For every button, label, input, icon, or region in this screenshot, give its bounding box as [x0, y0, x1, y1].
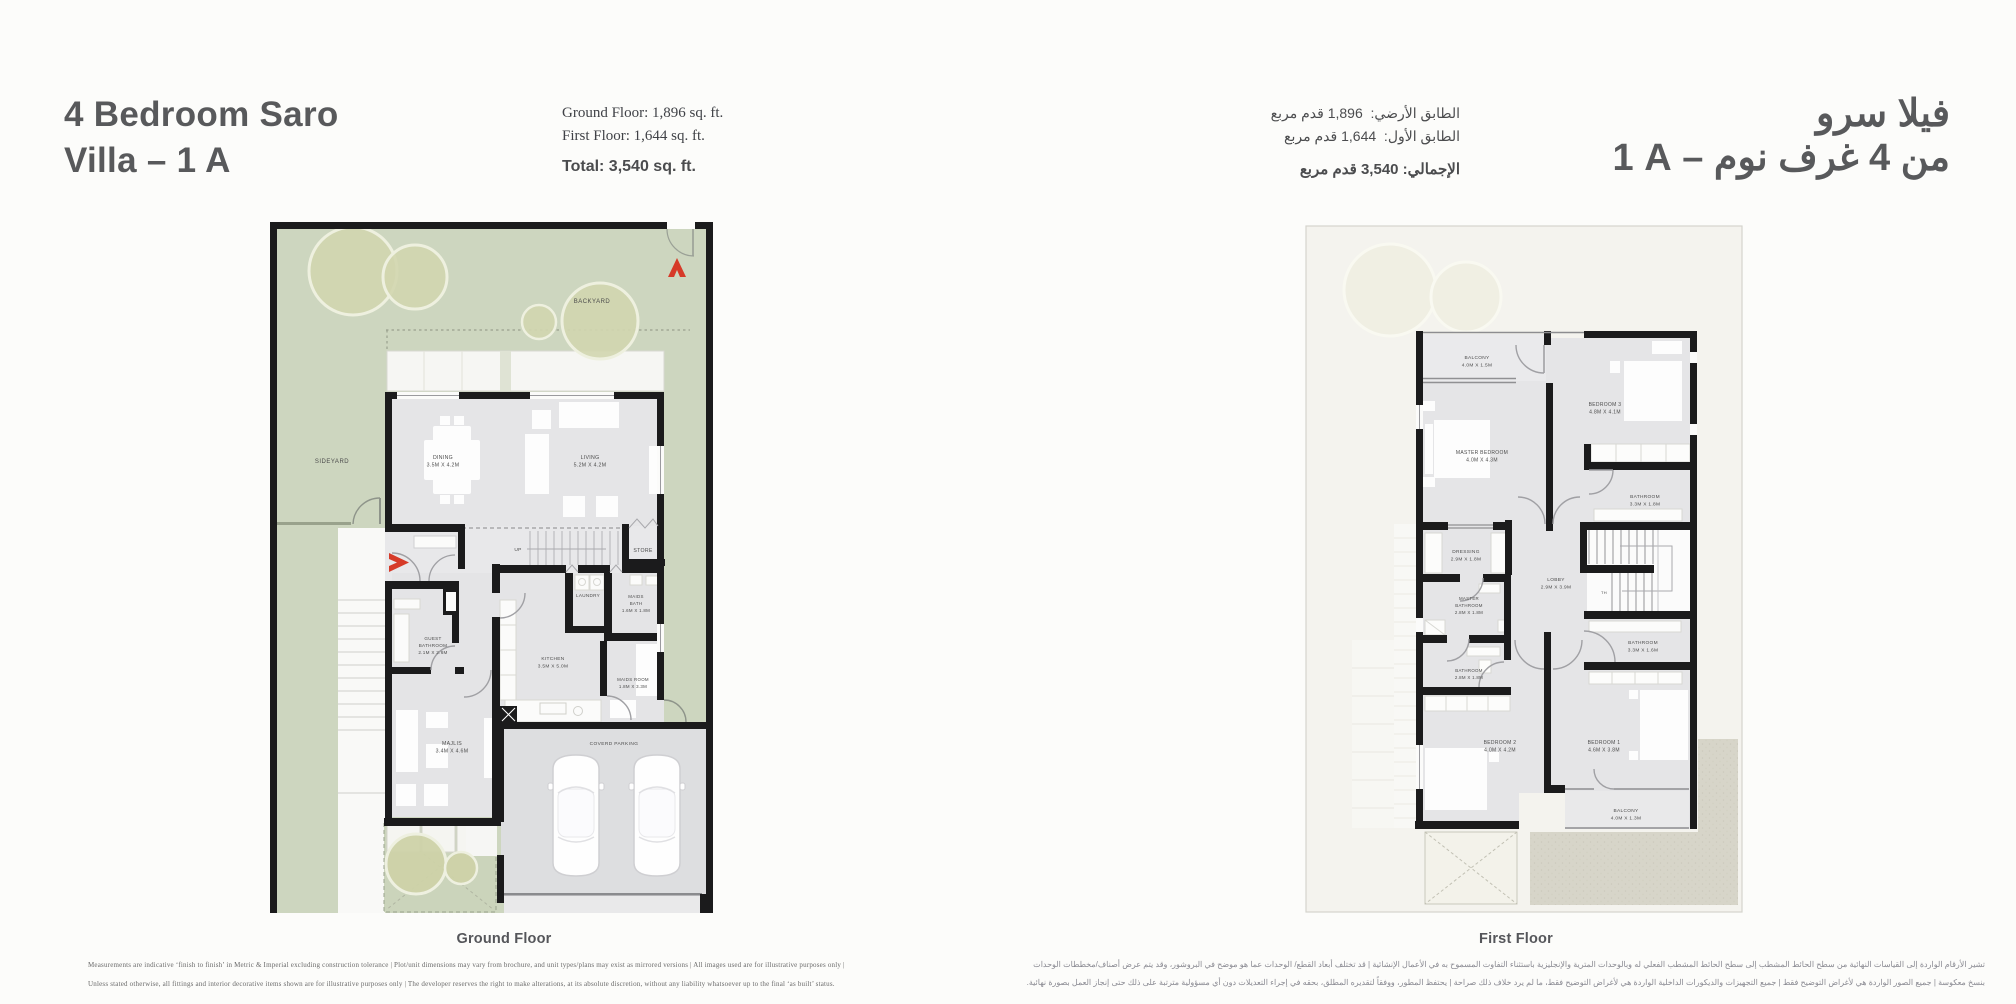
svg-text:4.6M X 3.8M: 4.6M X 3.8M	[1588, 748, 1620, 754]
svg-text:2.8M X 1.8M: 2.8M X 1.8M	[1455, 675, 1483, 680]
svg-text:MAIDS: MAIDS	[628, 594, 643, 599]
svg-text:GUEST: GUEST	[424, 636, 441, 641]
svg-text:BATHROOM: BATHROOM	[419, 643, 448, 648]
svg-text:BALCONY: BALCONY	[1464, 355, 1490, 361]
svg-text:MAIDS ROOM: MAIDS ROOM	[617, 677, 649, 682]
svg-text:BATHROOM: BATHROOM	[1455, 603, 1482, 608]
svg-text:3.3M X 1.8M: 3.3M X 1.8M	[1630, 502, 1661, 508]
svg-text:BALCONY: BALCONY	[1613, 808, 1639, 814]
svg-text:3.5M X 4.2M: 3.5M X 4.2M	[427, 463, 460, 469]
svg-text:MASTER: MASTER	[1459, 596, 1479, 601]
svg-text:LIVING: LIVING	[581, 455, 600, 461]
svg-text:2.1M X 2.6M: 2.1M X 2.6M	[418, 650, 447, 655]
svg-text:3.4M X 4.6M: 3.4M X 4.6M	[436, 749, 469, 755]
svg-text:BEDROOM 2: BEDROOM 2	[1484, 740, 1517, 746]
svg-text:4.0M X 4.3M: 4.0M X 4.3M	[1466, 458, 1498, 464]
svg-text:BATHROOM: BATHROOM	[1455, 668, 1482, 673]
svg-text:4.8M X 4.1M: 4.8M X 4.1M	[1589, 410, 1621, 416]
svg-text:2.8M X 1.8M: 2.8M X 1.8M	[1455, 610, 1483, 615]
svg-text:BATH: BATH	[630, 601, 643, 606]
svg-text:UP: UP	[514, 547, 521, 553]
svg-text:4.0M X 1.5M: 4.0M X 1.5M	[1462, 363, 1493, 369]
svg-text:DRESSING: DRESSING	[1452, 549, 1479, 555]
svg-text:4.0M X 4.2M: 4.0M X 4.2M	[1484, 748, 1516, 754]
svg-text:2.9M X 1.8M: 2.9M X 1.8M	[1451, 557, 1482, 563]
svg-text:BATHROOM: BATHROOM	[1630, 494, 1660, 500]
svg-text:4.0M X 1.3M: 4.0M X 1.3M	[1611, 816, 1642, 822]
svg-text:BATHROOM: BATHROOM	[1628, 640, 1658, 646]
svg-text:1.8M X 3.3M: 1.8M X 3.3M	[619, 684, 647, 689]
svg-text:COVERD PARKING: COVERD PARKING	[590, 741, 639, 747]
svg-text:MASTER BEDROOM: MASTER BEDROOM	[1456, 450, 1508, 456]
svg-text:BACKYARD: BACKYARD	[574, 299, 611, 305]
svg-text:KITCHEN: KITCHEN	[541, 656, 564, 662]
svg-text:LAUNDRY: LAUNDRY	[576, 593, 600, 598]
svg-text:STORE: STORE	[633, 548, 653, 554]
svg-text:5.2M X 4.2M: 5.2M X 4.2M	[574, 463, 607, 469]
svg-text:BEDROOM 1: BEDROOM 1	[1588, 740, 1621, 746]
svg-text:SIDEYARD: SIDEYARD	[315, 459, 349, 465]
svg-text:TH: TH	[1601, 590, 1607, 595]
svg-text:BEDROOM 3: BEDROOM 3	[1589, 402, 1622, 408]
svg-text:2.9M X 3.9M: 2.9M X 3.9M	[1541, 585, 1572, 591]
svg-text:DINING: DINING	[433, 455, 453, 461]
svg-text:3.5M X 5.0M: 3.5M X 5.0M	[538, 664, 569, 670]
svg-text:MAJLIS: MAJLIS	[442, 741, 462, 747]
svg-text:LOBBY: LOBBY	[1547, 577, 1565, 583]
svg-text:1.6M X 1.8M: 1.6M X 1.8M	[622, 608, 650, 613]
svg-text:3.3M X 1.6M: 3.3M X 1.6M	[1628, 648, 1659, 654]
